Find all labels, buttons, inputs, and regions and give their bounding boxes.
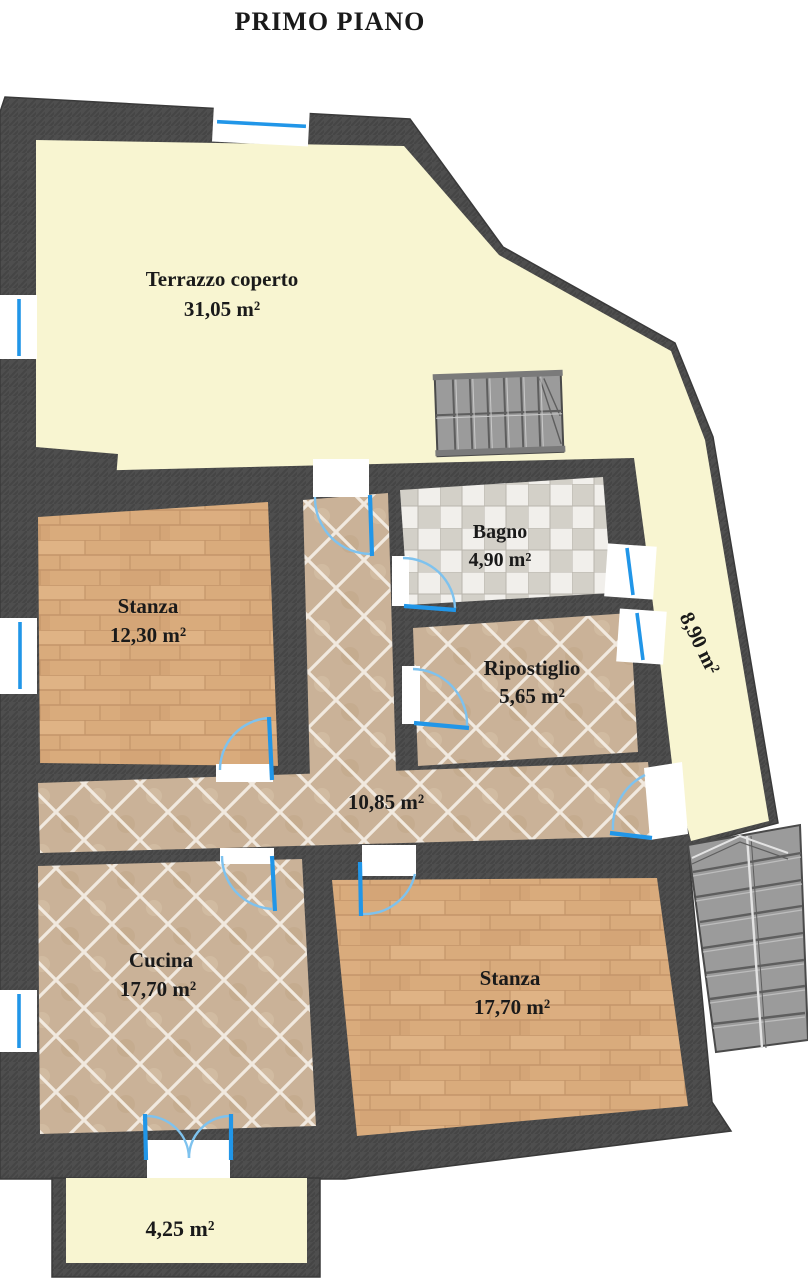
stanza1-label: Stanza xyxy=(118,594,179,618)
terrace-stairs xyxy=(433,370,566,456)
door-bagno-opening xyxy=(392,556,409,606)
stanza2-area: 17,70 m² xyxy=(474,995,550,1019)
balcone-area: 4,25 m² xyxy=(146,1216,215,1241)
door-corridor-opening xyxy=(313,459,369,497)
door-stanza2-opening xyxy=(362,845,416,876)
floor-plan: PRIMO PIANO Terrazzo coperto 31,05 m² St… xyxy=(0,0,808,1280)
door-stanza2-leaf xyxy=(360,862,361,916)
disimpegno-area: 10,85 m² xyxy=(348,790,424,814)
door-hall-opening xyxy=(644,762,688,840)
bagno-label: Bagno xyxy=(473,521,527,543)
door-balcony-left-leaf xyxy=(145,1114,146,1160)
door-cucina-opening xyxy=(220,848,274,864)
door-balcony-opening xyxy=(147,1140,230,1178)
door-ripostiglio-opening xyxy=(402,666,420,724)
stanza2-label: Stanza xyxy=(480,966,541,990)
ripostiglio-label: Ripostiglio xyxy=(484,656,581,680)
door-cucina-leaf xyxy=(272,856,275,911)
terrazzo-label: Terrazzo coperto xyxy=(146,267,299,291)
bagno-area: 4,90 m² xyxy=(469,549,532,571)
door-corridor-leaf xyxy=(370,495,372,556)
door-stanza1-opening xyxy=(216,764,273,782)
door-stanza1-leaf xyxy=(269,717,272,780)
corridor-floor xyxy=(303,493,396,778)
cucina-area: 17,70 m² xyxy=(120,977,196,1001)
stanza1-area: 12,30 m² xyxy=(110,623,186,647)
terrazzo-area: 31,05 m² xyxy=(184,297,260,321)
page-title: PRIMO PIANO xyxy=(235,7,426,36)
ripostiglio-area: 5,65 m² xyxy=(499,684,565,708)
cucina-label: Cucina xyxy=(129,948,194,972)
